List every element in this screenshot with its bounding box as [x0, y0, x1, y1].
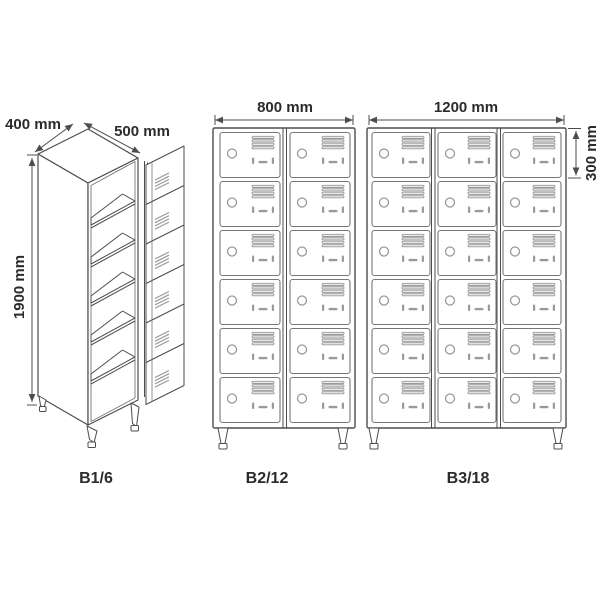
vent-slats-icon	[402, 192, 424, 194]
recessed-handle-icon	[322, 256, 324, 263]
recessed-handle-icon	[422, 207, 424, 214]
recessed-handle-icon	[259, 308, 268, 310]
vent-slats-icon	[322, 189, 344, 191]
recessed-handle-icon	[329, 210, 338, 212]
recessed-handle-icon	[475, 308, 484, 310]
door-panel	[438, 133, 496, 178]
locker-door	[503, 280, 561, 325]
recessed-handle-icon	[259, 259, 268, 261]
recessed-handle-icon	[342, 256, 344, 263]
vent-slats-icon	[252, 290, 274, 292]
recessed-handle-icon	[553, 207, 555, 214]
vent-slats-icon	[322, 283, 344, 285]
recessed-handle-icon	[475, 406, 484, 408]
locker-door	[503, 182, 561, 227]
recessed-handle-icon	[329, 406, 338, 408]
door-panel	[438, 329, 496, 374]
recessed-handle-icon	[409, 357, 418, 359]
vent-slats-icon	[252, 140, 274, 142]
recessed-handle-icon	[540, 210, 549, 212]
recessed-handle-icon	[540, 259, 549, 261]
recessed-handle-icon	[272, 403, 274, 410]
vent-slats-icon	[468, 283, 490, 285]
vent-slats-icon	[533, 388, 555, 390]
door-panel	[503, 182, 561, 227]
vent-slats-icon	[468, 196, 490, 198]
dim-label-width: 1200 mm	[434, 99, 498, 116]
vent-slats-icon	[468, 385, 490, 387]
vent-slats-icon	[402, 238, 424, 240]
vent-slats-icon	[533, 392, 555, 394]
vent-slats-icon	[322, 332, 344, 334]
door-panel	[372, 280, 430, 325]
recessed-handle-icon	[252, 158, 254, 165]
dim-label-width: 800 mm	[257, 99, 313, 116]
recessed-handle-icon	[259, 406, 268, 408]
locker-door	[372, 133, 430, 178]
recessed-handle-icon	[402, 158, 404, 165]
recessed-handle-icon	[252, 207, 254, 214]
locker-name-b3: B3/18	[447, 470, 490, 487]
vent-slats-icon	[533, 192, 555, 194]
locker-door	[438, 280, 496, 325]
leg-foot	[339, 444, 347, 450]
vent-slats-icon	[468, 336, 490, 338]
locker-door	[503, 231, 561, 276]
recessed-handle-icon	[252, 403, 254, 410]
door-panel	[220, 280, 280, 325]
vent-slats-icon	[322, 143, 344, 145]
dim-label-height: 1900 mm	[11, 255, 28, 319]
recessed-handle-icon	[402, 207, 404, 214]
vent-slats-icon	[402, 189, 424, 191]
recessed-handle-icon	[553, 158, 555, 165]
vent-slats-icon	[252, 385, 274, 387]
leg-foot	[40, 407, 47, 412]
locker-door	[372, 378, 430, 423]
vent-slats-icon	[402, 287, 424, 289]
recessed-handle-icon	[553, 403, 555, 410]
recessed-handle-icon	[533, 207, 535, 214]
recessed-handle-icon	[540, 406, 549, 408]
door-panel	[220, 231, 280, 276]
vent-slats-icon	[322, 385, 344, 387]
locker-size-diagram: 400 mm 500 mm 1900 mm B1/6 800 mm B2/12 …	[0, 0, 600, 600]
recessed-handle-icon	[553, 305, 555, 312]
recessed-handle-icon	[252, 256, 254, 263]
door-panel	[372, 329, 430, 374]
leg	[553, 428, 563, 444]
vent-slats-icon	[402, 136, 424, 138]
recessed-handle-icon	[540, 357, 549, 359]
recessed-handle-icon	[322, 403, 324, 410]
cabinet-legs	[369, 428, 563, 449]
door-panel	[290, 231, 350, 276]
recessed-handle-icon	[342, 403, 344, 410]
vent-slats-icon	[468, 185, 490, 187]
vent-slats-icon	[322, 196, 344, 198]
recessed-handle-icon	[422, 158, 424, 165]
vent-slats-icon	[322, 192, 344, 194]
vent-slats-icon	[468, 241, 490, 243]
vent-slats-icon	[533, 290, 555, 292]
vent-slats-icon	[252, 381, 274, 383]
recessed-handle-icon	[475, 259, 484, 261]
vent-slats-icon	[402, 381, 424, 383]
vent-slats-icon	[468, 245, 490, 247]
dim-label-compartment-height: 300 mm	[583, 125, 600, 181]
locker-door	[372, 280, 430, 325]
vent-slats-icon	[468, 192, 490, 194]
vent-slats-icon	[533, 381, 555, 383]
door-panel	[220, 182, 280, 227]
leg-foot	[219, 444, 227, 450]
door-panel	[503, 280, 561, 325]
diagram-canvas: 400 mm 500 mm 1900 mm B1/6 800 mm B2/12 …	[0, 0, 600, 600]
door-panel	[503, 378, 561, 423]
recessed-handle-icon	[409, 210, 418, 212]
locker-door	[438, 182, 496, 227]
vent-slats-icon	[533, 343, 555, 345]
leg-foot	[554, 444, 562, 450]
recessed-handle-icon	[475, 161, 484, 163]
cabinet-side-panel	[38, 154, 88, 425]
vent-slats-icon	[252, 336, 274, 338]
vent-slats-icon	[402, 234, 424, 236]
recessed-handle-icon	[342, 305, 344, 312]
recessed-handle-icon	[533, 256, 535, 263]
recessed-handle-icon	[540, 161, 549, 163]
vent-slats-icon	[468, 234, 490, 236]
vent-slats-icon	[252, 136, 274, 138]
recessed-handle-icon	[322, 158, 324, 165]
recessed-handle-icon	[468, 207, 470, 214]
leg	[131, 403, 139, 427]
recessed-handle-icon	[533, 305, 535, 312]
recessed-handle-icon	[409, 259, 418, 261]
recessed-handle-icon	[259, 357, 268, 359]
recessed-handle-icon	[252, 354, 254, 361]
vent-slats-icon	[322, 343, 344, 345]
vent-slats-icon	[533, 140, 555, 142]
recessed-handle-icon	[322, 354, 324, 361]
locker-door	[290, 378, 350, 423]
recessed-handle-icon	[342, 207, 344, 214]
vent-slats-icon	[533, 196, 555, 198]
vent-slats-icon	[402, 388, 424, 390]
leg-foot	[370, 444, 378, 450]
locker-door	[290, 133, 350, 178]
recessed-handle-icon	[533, 354, 535, 361]
vent-slats-icon	[402, 196, 424, 198]
locker-door	[220, 280, 280, 325]
door-panel	[503, 231, 561, 276]
door-panel	[372, 231, 430, 276]
recessed-handle-icon	[488, 158, 490, 165]
recessed-handle-icon	[422, 354, 424, 361]
locker-door	[372, 329, 430, 374]
vent-slats-icon	[322, 140, 344, 142]
vent-slats-icon	[468, 388, 490, 390]
vent-slats-icon	[322, 388, 344, 390]
recessed-handle-icon	[329, 357, 338, 359]
vent-slats-icon	[252, 185, 274, 187]
vent-slats-icon	[322, 290, 344, 292]
recessed-handle-icon	[402, 403, 404, 410]
recessed-handle-icon	[329, 161, 338, 163]
locker-door	[438, 231, 496, 276]
vent-slats-icon	[533, 136, 555, 138]
vent-slats-icon	[533, 185, 555, 187]
recessed-handle-icon	[468, 305, 470, 312]
door-panel	[372, 133, 430, 178]
recessed-handle-icon	[488, 354, 490, 361]
recessed-handle-icon	[540, 308, 549, 310]
vent-slats-icon	[252, 332, 274, 334]
vent-slats-icon	[468, 143, 490, 145]
door-panel	[290, 280, 350, 325]
vent-slats-icon	[252, 143, 274, 145]
recessed-handle-icon	[468, 158, 470, 165]
vent-slats-icon	[402, 143, 424, 145]
recessed-handle-icon	[409, 308, 418, 310]
leg	[218, 428, 228, 444]
recessed-handle-icon	[475, 357, 484, 359]
vent-slats-icon	[402, 339, 424, 341]
locker-door	[372, 182, 430, 227]
recessed-handle-icon	[402, 305, 404, 312]
vent-slats-icon	[468, 392, 490, 394]
door-panel	[438, 182, 496, 227]
door-panel	[220, 133, 280, 178]
vent-slats-icon	[468, 290, 490, 292]
recessed-handle-icon	[409, 406, 418, 408]
vent-slats-icon	[468, 238, 490, 240]
locker-door	[290, 280, 350, 325]
recessed-handle-icon	[329, 259, 338, 261]
vent-slats-icon	[402, 241, 424, 243]
vent-slats-icon	[402, 147, 424, 149]
locker-door	[438, 133, 496, 178]
locker-door	[290, 231, 350, 276]
recessed-handle-icon	[252, 305, 254, 312]
recessed-handle-icon	[422, 305, 424, 312]
locker-door	[290, 329, 350, 374]
locker-door	[220, 231, 280, 276]
vent-slats-icon	[322, 392, 344, 394]
vent-slats-icon	[322, 185, 344, 187]
door-panel	[503, 133, 561, 178]
vent-slats-icon	[533, 294, 555, 296]
vent-slats-icon	[322, 241, 344, 243]
vent-slats-icon	[252, 245, 274, 247]
recessed-handle-icon	[409, 161, 418, 163]
recessed-handle-icon	[475, 210, 484, 212]
leg-foot	[131, 426, 139, 432]
vent-slats-icon	[468, 343, 490, 345]
recessed-handle-icon	[329, 308, 338, 310]
vent-slats-icon	[533, 143, 555, 145]
leg-foot	[88, 442, 96, 448]
recessed-handle-icon	[488, 207, 490, 214]
locker-b1-isometric: 400 mm 500 mm 1900 mm B1/6	[5, 116, 184, 487]
vent-slats-icon	[468, 381, 490, 383]
vent-slats-icon	[533, 332, 555, 334]
vent-slats-icon	[402, 185, 424, 187]
locker-b3-front: 1200 mm 300 mm B3/18	[367, 99, 600, 487]
recessed-handle-icon	[272, 207, 274, 214]
vent-slats-icon	[252, 196, 274, 198]
vent-slats-icon	[322, 136, 344, 138]
vent-slats-icon	[402, 336, 424, 338]
vent-slats-icon	[533, 336, 555, 338]
recessed-handle-icon	[272, 305, 274, 312]
recessed-handle-icon	[468, 403, 470, 410]
locker-door	[503, 329, 561, 374]
vent-slats-icon	[468, 287, 490, 289]
vent-slats-icon	[322, 336, 344, 338]
locker-name-b1: B1/6	[79, 470, 113, 487]
recessed-handle-icon	[272, 256, 274, 263]
vent-slats-icon	[468, 147, 490, 149]
locker-door	[372, 231, 430, 276]
recessed-handle-icon	[259, 210, 268, 212]
vent-slats-icon	[322, 238, 344, 240]
locker-door	[290, 182, 350, 227]
recessed-handle-icon	[322, 305, 324, 312]
vent-slats-icon	[468, 294, 490, 296]
recessed-handle-icon	[422, 256, 424, 263]
vent-slats-icon	[402, 245, 424, 247]
locker-door	[220, 378, 280, 423]
locker-door	[503, 133, 561, 178]
door-panel	[372, 378, 430, 423]
vent-slats-icon	[322, 287, 344, 289]
vent-slats-icon	[252, 241, 274, 243]
vent-slats-icon	[252, 192, 274, 194]
vent-slats-icon	[533, 147, 555, 149]
door-panel	[290, 378, 350, 423]
leg	[369, 428, 379, 444]
locker-door	[220, 182, 280, 227]
recessed-handle-icon	[259, 161, 268, 163]
door-panel	[220, 378, 280, 423]
recessed-handle-icon	[402, 354, 404, 361]
door-panel	[503, 329, 561, 374]
door-panel	[290, 182, 350, 227]
vent-slats-icon	[533, 245, 555, 247]
vent-slats-icon	[402, 392, 424, 394]
locker-door	[438, 329, 496, 374]
vent-slats-icon	[252, 234, 274, 236]
vent-slats-icon	[533, 339, 555, 341]
door-panel	[290, 133, 350, 178]
vent-slats-icon	[533, 234, 555, 236]
vent-slats-icon	[533, 287, 555, 289]
recessed-handle-icon	[272, 158, 274, 165]
recessed-handle-icon	[488, 305, 490, 312]
vent-slats-icon	[322, 245, 344, 247]
vent-slats-icon	[322, 294, 344, 296]
vent-slats-icon	[252, 388, 274, 390]
recessed-handle-icon	[422, 403, 424, 410]
door-panel	[438, 378, 496, 423]
vent-slats-icon	[533, 238, 555, 240]
vent-slats-icon	[468, 140, 490, 142]
vent-slats-icon	[252, 147, 274, 149]
dim-label-width: 500 mm	[114, 123, 170, 140]
locker-name-b2: B2/12	[246, 470, 289, 487]
vent-slats-icon	[252, 238, 274, 240]
vent-slats-icon	[468, 136, 490, 138]
recessed-handle-icon	[533, 158, 535, 165]
dim-ticks-compartment	[568, 129, 581, 179]
leg	[87, 426, 97, 443]
locker-b2-front: 800 mm B2/12	[213, 99, 355, 487]
vent-slats-icon	[252, 392, 274, 394]
vent-slats-icon	[322, 147, 344, 149]
recessed-handle-icon	[533, 403, 535, 410]
vent-slats-icon	[402, 294, 424, 296]
vent-slats-icon	[402, 332, 424, 334]
recessed-handle-icon	[488, 403, 490, 410]
vent-slats-icon	[252, 343, 274, 345]
vent-slats-icon	[252, 189, 274, 191]
vent-slats-icon	[468, 189, 490, 191]
vent-slats-icon	[402, 283, 424, 285]
open-doors	[146, 146, 184, 405]
vent-slats-icon	[533, 385, 555, 387]
cabinet-legs	[218, 428, 348, 449]
vent-slats-icon	[322, 234, 344, 236]
vent-slats-icon	[252, 287, 274, 289]
locker-door	[503, 378, 561, 423]
vent-slats-icon	[402, 385, 424, 387]
vent-slats-icon	[322, 381, 344, 383]
dim-label-depth: 400 mm	[5, 116, 61, 133]
recessed-handle-icon	[402, 256, 404, 263]
vent-slats-icon	[533, 283, 555, 285]
b2-dimensions	[215, 115, 353, 125]
vent-slats-icon	[468, 339, 490, 341]
door-panel	[220, 329, 280, 374]
door-panel	[372, 182, 430, 227]
locker-door	[438, 378, 496, 423]
recessed-handle-icon	[553, 256, 555, 263]
vent-slats-icon	[252, 339, 274, 341]
vent-slats-icon	[252, 294, 274, 296]
locker-door	[220, 329, 280, 374]
recessed-handle-icon	[342, 158, 344, 165]
door-panel	[438, 280, 496, 325]
recessed-handle-icon	[468, 354, 470, 361]
recessed-handle-icon	[342, 354, 344, 361]
vent-slats-icon	[533, 241, 555, 243]
recessed-handle-icon	[468, 256, 470, 263]
vent-slats-icon	[402, 290, 424, 292]
vent-slats-icon	[468, 332, 490, 334]
vent-slats-icon	[402, 343, 424, 345]
recessed-handle-icon	[272, 354, 274, 361]
vent-slats-icon	[252, 283, 274, 285]
door-panel	[290, 329, 350, 374]
recessed-handle-icon	[322, 207, 324, 214]
vent-slats-icon	[533, 189, 555, 191]
locker-door	[220, 133, 280, 178]
recessed-handle-icon	[553, 354, 555, 361]
door-panel	[438, 231, 496, 276]
vent-slats-icon	[402, 140, 424, 142]
